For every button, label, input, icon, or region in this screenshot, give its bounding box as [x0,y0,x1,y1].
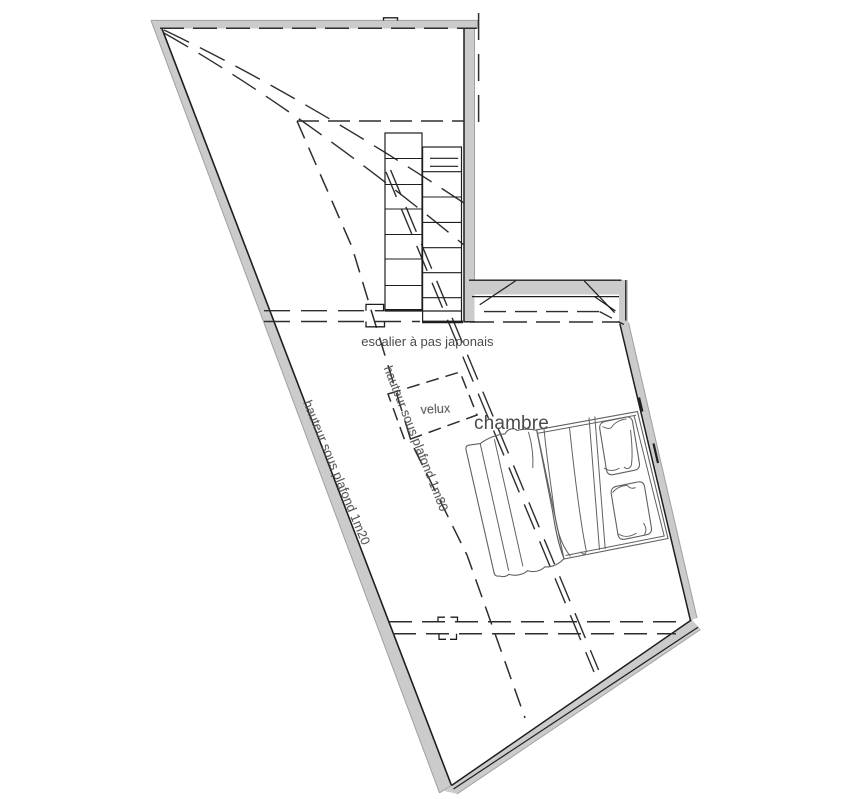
svg-text:chambre: chambre [474,413,549,434]
svg-text:velux: velux [420,401,451,417]
svg-text:escalier à pas japonais: escalier à pas japonais [361,334,494,349]
